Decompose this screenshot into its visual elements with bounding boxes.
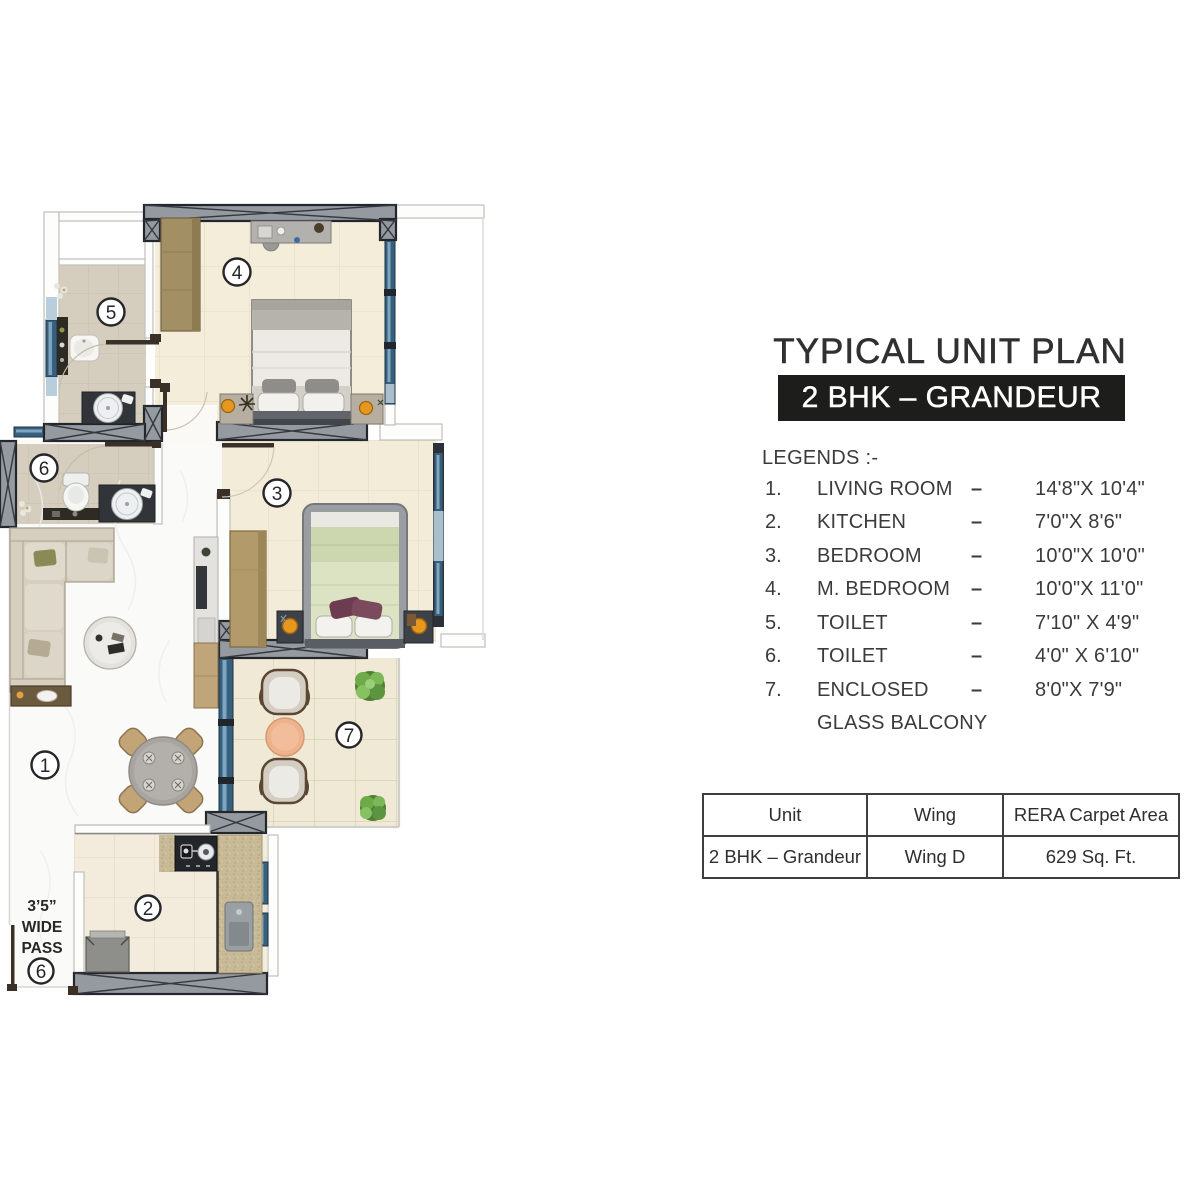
svg-text:WIDE: WIDE: [22, 919, 62, 936]
svg-text:4: 4: [232, 263, 243, 284]
svg-text:1: 1: [40, 756, 51, 777]
svg-text:PASS: PASS: [21, 940, 62, 957]
svg-text:2: 2: [143, 899, 154, 920]
svg-text:3’5”: 3’5”: [27, 898, 56, 915]
svg-text:6: 6: [36, 962, 47, 983]
svg-text:5: 5: [106, 303, 117, 324]
